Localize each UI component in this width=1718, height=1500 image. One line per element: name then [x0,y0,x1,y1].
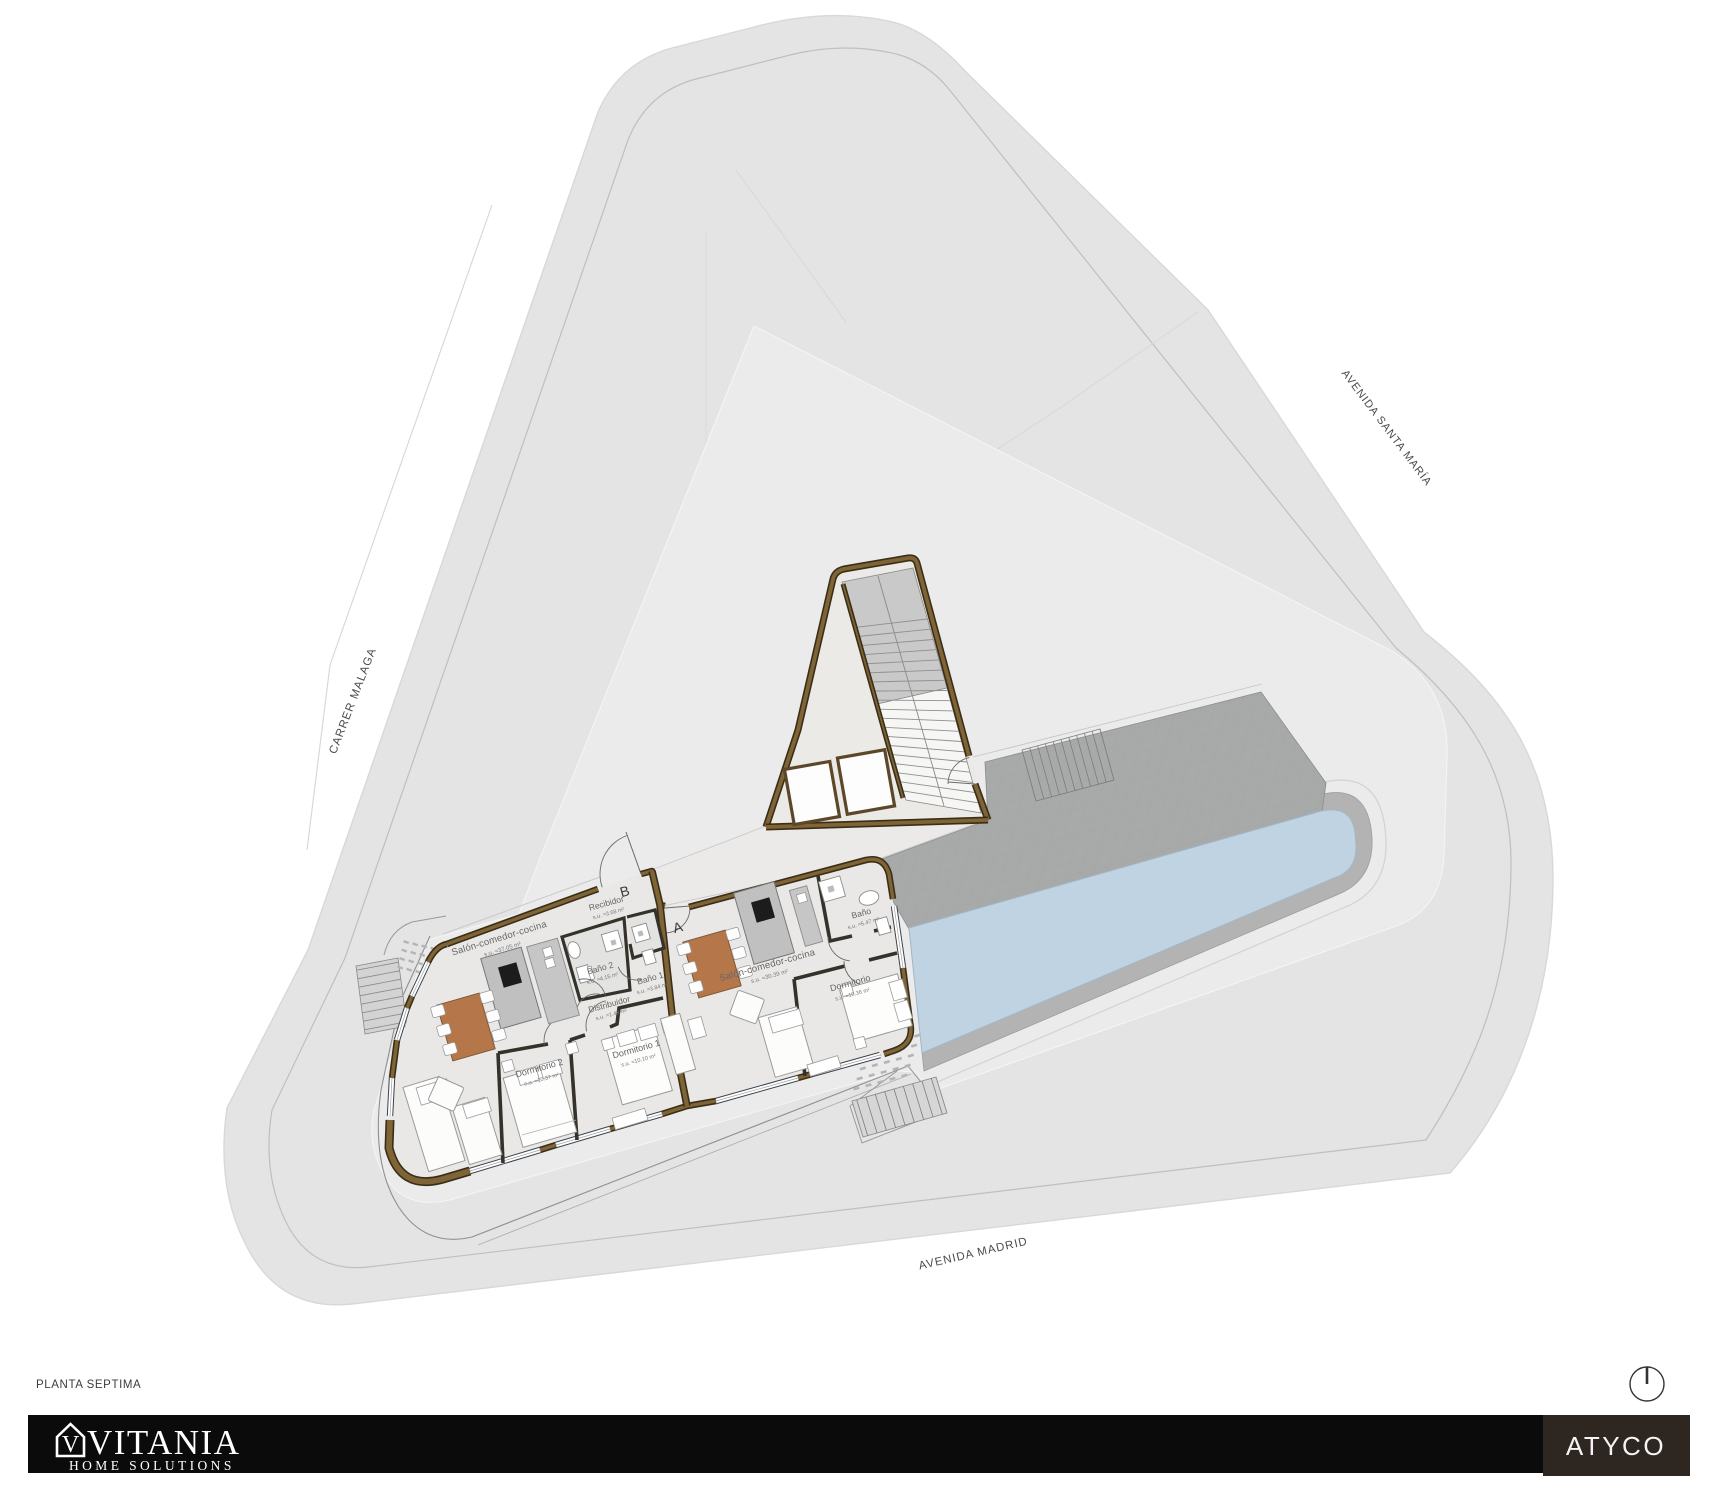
svg-text:CARRER MALAGA: CARRER MALAGA [327,646,379,756]
svg-text:AVENIDA SANTA MARÍA: AVENIDA SANTA MARÍA [1339,367,1435,488]
svg-text:V: V [62,1432,80,1458]
svg-text:VITANIA: VITANIA [87,1423,241,1462]
svg-text:PLANTA SEPTIMA: PLANTA SEPTIMA [36,1379,141,1391]
svg-text:AVENIDA MADRID: AVENIDA MADRID [918,1236,1029,1273]
svg-text:HOME SOLUTIONS: HOME SOLUTIONS [69,1458,235,1473]
svg-text:ATYCO: ATYCO [1566,1431,1666,1461]
